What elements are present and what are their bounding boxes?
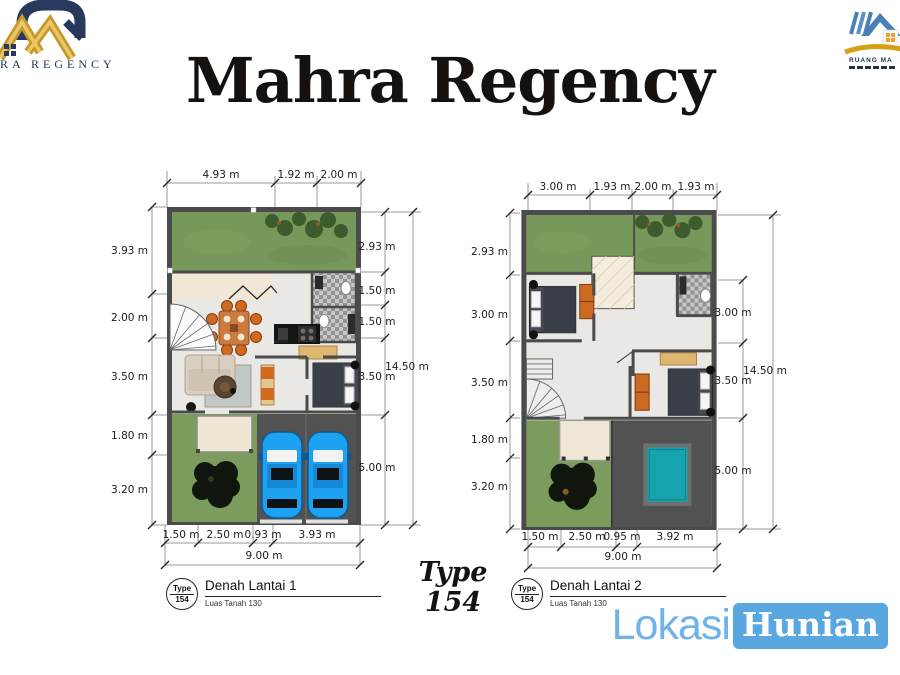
plan1-bottom-total: 9.00 m <box>246 550 283 562</box>
logo-right-text: RUANG MA <box>849 57 893 64</box>
plan2-type-value: 154 <box>520 595 533 605</box>
plan1-garage <box>257 414 356 524</box>
logo-right-mark <box>843 4 900 78</box>
plan2-left-dim-1: 3.00 m <box>471 309 508 321</box>
plan1-right-dim-2: 1.50 m <box>359 316 396 328</box>
plan1-bottom-dim-2: 0.93 m <box>245 529 282 541</box>
type-label-line1: Type <box>408 558 498 588</box>
logo-right-subtext-bar <box>849 66 895 69</box>
swoosh-icon <box>845 46 900 52</box>
plan2-top-dim-3: 1.93 m <box>678 181 715 193</box>
plan2-top-dim-0: 3.00 m <box>540 181 577 193</box>
plan2-bottom-dim-3: 3.92 m <box>657 531 694 543</box>
plan1-right-dim-0: 2.93 m <box>359 241 396 253</box>
plan1-subtitle: Luas Tanah 130 <box>205 599 381 608</box>
plan1-right-total: 14.50 m <box>385 361 429 373</box>
plan1-left-dim-2: 3.50 m <box>111 371 148 383</box>
toilet-icon <box>319 315 329 328</box>
plan1-front-yard <box>172 414 257 522</box>
plan1-garden-top <box>172 212 356 272</box>
lokasihunian-logo: Lokasi Hunian <box>612 601 888 650</box>
plan1-right-dim-1: 1.50 m <box>359 285 396 297</box>
toilet-icon <box>341 282 351 295</box>
plan2-type-label: Type <box>515 584 539 595</box>
plan1-bedroom <box>313 361 360 411</box>
plan2-right-total: 14.50 m <box>743 365 787 377</box>
plan1-left-dim-4: 3.20 m <box>111 484 148 496</box>
plan1-right-dim-4: 5.00 m <box>359 462 396 474</box>
terrace <box>560 420 610 460</box>
lokasi-text: Lokasi <box>612 601 730 650</box>
plan2-top-dim-2: 2.00 m <box>635 181 672 193</box>
plan1-top-dim-2: 2.00 m <box>321 169 358 181</box>
car-icon <box>305 432 351 518</box>
plan2-bottom-dim-0: 1.50 m <box>522 531 559 543</box>
plan1-bottom-dim-0: 1.50 m <box>163 529 200 541</box>
plan2-yard <box>526 420 612 527</box>
floor-plan-1 <box>167 207 361 525</box>
toilet-icon <box>701 289 711 302</box>
plan1-titleblock: Type 154 Denah Lantai 1 Luas Tanah 130 <box>166 578 381 610</box>
plan2-type-circle: Type 154 <box>511 578 543 610</box>
floor-plan-2 <box>520 210 718 530</box>
plan1-left-dim-0: 3.93 m <box>111 245 148 257</box>
plan2-left-dim-2: 3.50 m <box>471 377 508 389</box>
plan2-bottom-dim-1: 2.50 m <box>569 531 606 543</box>
page-title: Mahra Regency <box>0 44 900 117</box>
car-icon <box>259 432 305 518</box>
type-label-line2: 154 <box>408 588 498 618</box>
plan2-bathroom <box>677 273 711 315</box>
type-label: Type 154 <box>408 558 498 618</box>
plan2-right-dim-0: 3.00 m <box>715 307 752 319</box>
plan2-left-dim-3: 1.80 m <box>471 434 508 446</box>
plan1-type-label: Type <box>170 584 194 595</box>
plan1-top-dim-1: 1.92 m <box>278 169 315 181</box>
plan2-balcony <box>592 256 634 308</box>
plan1-bottom-dim-1: 2.50 m <box>207 529 244 541</box>
plan1-type-circle: Type 154 <box>166 578 198 610</box>
plan2-left-dim-0: 2.93 m <box>471 246 508 258</box>
plan2-bottom-dim-2: 0.95 m <box>604 531 641 543</box>
slide: RA REGENCY Mahra Regency RUANG MA <box>0 0 900 675</box>
desk <box>660 353 696 365</box>
hunian-badge: Hunian <box>733 603 888 649</box>
brand-logo-right: RUANG MA <box>843 4 900 78</box>
plan1-bottom-dim-3: 3.93 m <box>299 529 336 541</box>
porch-canopy <box>197 416 252 452</box>
plan1-left-dim-1: 2.00 m <box>111 312 148 324</box>
plan1-type-value: 154 <box>175 595 188 605</box>
pool <box>645 445 689 503</box>
plan2-left-dim-4: 3.20 m <box>471 481 508 493</box>
plan2-roof-deck <box>612 420 712 527</box>
plan2-bottom-total: 9.00 m <box>605 551 642 563</box>
plan1-left-dim-3: 1.80 m <box>111 430 148 442</box>
plan2-right-dim-2: 5.00 m <box>715 465 752 477</box>
plan2-title: Denah Lantai 2 <box>550 578 726 597</box>
plan1-terrace <box>172 272 277 300</box>
plan1-title: Denah Lantai 1 <box>205 578 381 597</box>
plan1-top-dim-0: 4.93 m <box>203 169 240 181</box>
plan2-top-dim-1: 1.93 m <box>594 181 631 193</box>
